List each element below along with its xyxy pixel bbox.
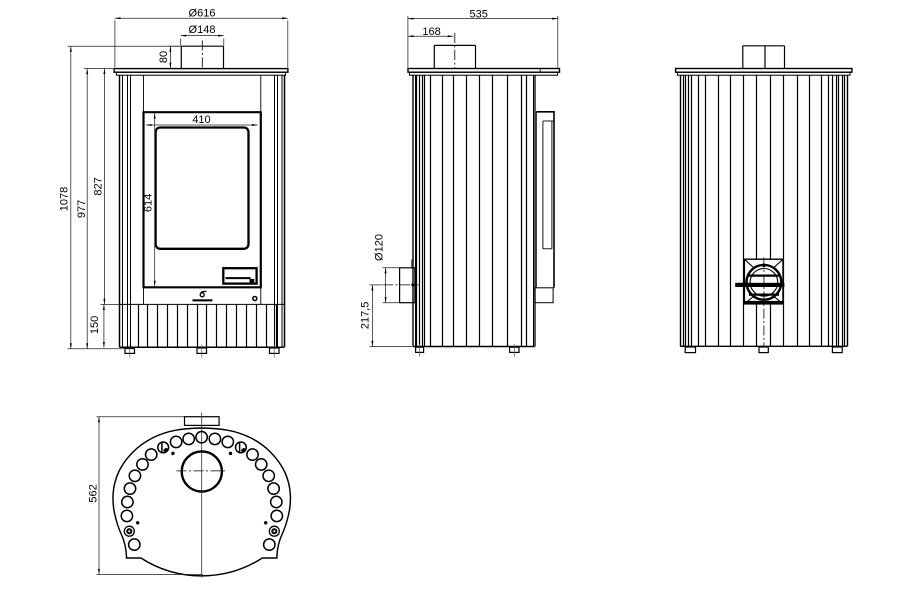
svg-text:614: 614: [143, 194, 155, 212]
svg-text:410: 410: [192, 114, 210, 126]
svg-text:1078: 1078: [58, 187, 70, 211]
svg-text:168: 168: [422, 26, 440, 38]
svg-text:Ø148: Ø148: [189, 24, 216, 36]
svg-text:827: 827: [93, 177, 105, 195]
svg-text:977: 977: [76, 200, 88, 218]
svg-text:535: 535: [470, 8, 488, 20]
svg-text:Ø616: Ø616: [189, 7, 216, 19]
svg-text:150: 150: [89, 316, 101, 334]
svg-text:80: 80: [158, 51, 170, 63]
svg-text:562: 562: [88, 484, 100, 502]
svg-text:217,5: 217,5: [359, 302, 371, 330]
svg-text:Ø120: Ø120: [374, 234, 386, 261]
